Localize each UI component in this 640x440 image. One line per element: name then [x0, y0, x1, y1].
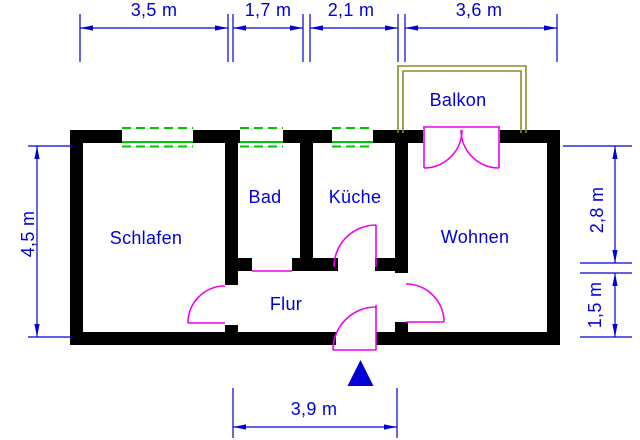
room-label-bad: Bad [249, 187, 282, 207]
dim-top-2-label: 1,7 m [245, 0, 292, 20]
window-kueche [332, 128, 373, 147]
room-label-schlafen: Schlafen [110, 228, 182, 248]
window-schlafen [122, 128, 193, 147]
floor-plan-page: 3,5 m 1,7 m 2,1 m 3,6 m 4,5 m 2,8 m 1,5 … [0, 0, 640, 440]
dimension-left: 4,5 m [18, 146, 74, 337]
dimension-bottom: 3,9 m [233, 388, 397, 438]
dim-bottom-label: 3,9 m [291, 399, 338, 419]
door-kueche [334, 225, 376, 267]
door-entrance [333, 305, 376, 350]
room-label-balkon: Balkon [430, 90, 487, 110]
door-schlafen [188, 286, 225, 323]
room-label-wohnen: Wohnen [441, 227, 510, 247]
entrance-arrow-icon [348, 360, 374, 386]
room-label-flur: Flur [270, 294, 302, 314]
dim-right-1-label: 2,8 m [587, 187, 607, 234]
dimension-top: 3,5 m 1,7 m 2,1 m 3,6 m [80, 0, 557, 62]
floor-plan-drawing: 3,5 m 1,7 m 2,1 m 3,6 m 4,5 m 2,8 m 1,5 … [0, 0, 640, 440]
dim-top-4-label: 3,6 m [456, 0, 503, 20]
room-label-kueche: Küche [329, 187, 382, 207]
dim-left-label: 4,5 m [18, 211, 38, 258]
door-balcony [423, 127, 500, 168]
dim-top-3-label: 2,1 m [328, 0, 375, 20]
dim-top-1-label: 3,5 m [131, 0, 178, 20]
dimension-right: 2,8 m 1,5 m [563, 146, 632, 337]
dim-right-2-label: 1,5 m [585, 282, 605, 329]
window-bad [240, 128, 283, 147]
door-wohnen [406, 284, 444, 322]
